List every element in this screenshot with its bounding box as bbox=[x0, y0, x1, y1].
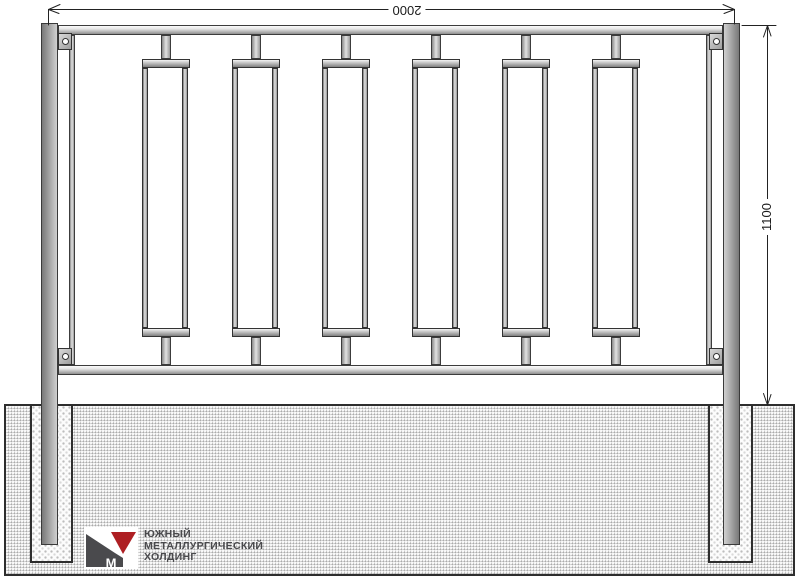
company-logo: M ЮЖНЫЙ МЕТАЛЛУРГИЧЕСКИЙ ХОЛДИНГ bbox=[84, 527, 284, 572]
picket-side-left bbox=[232, 68, 238, 328]
picket-cap-top bbox=[592, 59, 640, 68]
picket-frame bbox=[412, 59, 460, 337]
picket-cap-bottom bbox=[232, 328, 280, 337]
dimension-width-label: 2000 bbox=[389, 3, 426, 17]
picket-side-left bbox=[322, 68, 328, 328]
bolt-hole-icon bbox=[713, 38, 720, 45]
picket-frame bbox=[322, 59, 370, 337]
picket bbox=[322, 35, 370, 365]
mounting-plate-bottom-left bbox=[58, 348, 72, 365]
picket-bottom-connector bbox=[521, 337, 531, 365]
picket-top-connector bbox=[521, 35, 531, 59]
picket-cap-bottom bbox=[322, 328, 370, 337]
dimension-height-label: 1100 bbox=[760, 199, 774, 235]
mounting-plate-bottom-right bbox=[709, 348, 723, 365]
picket-cap-top bbox=[322, 59, 370, 68]
picket-top-connector bbox=[161, 35, 171, 59]
picket-cap-top bbox=[142, 59, 190, 68]
picket-cap-bottom bbox=[412, 328, 460, 337]
picket-side-right bbox=[182, 68, 188, 328]
picket bbox=[142, 35, 190, 365]
mounting-plate-top-left bbox=[58, 33, 72, 50]
picket-cap-bottom bbox=[502, 328, 550, 337]
picket-cap-top bbox=[502, 59, 550, 68]
logo-mark-icon: M bbox=[84, 527, 138, 569]
logo-text-line3: ХОЛДИНГ bbox=[144, 552, 263, 564]
picket-frame bbox=[232, 59, 280, 337]
picket-side-right bbox=[632, 68, 638, 328]
picket-top-connector bbox=[431, 35, 441, 59]
picket-bottom-connector bbox=[431, 337, 441, 365]
picket-top-connector bbox=[341, 35, 351, 59]
logo-text-line1: ЮЖНЫЙ bbox=[144, 529, 263, 541]
picket-bottom-connector bbox=[161, 337, 171, 365]
logo-mark-letter: M bbox=[106, 556, 117, 570]
pickets-layer bbox=[0, 0, 800, 582]
picket-top-connector bbox=[611, 35, 621, 59]
bolt-hole-icon bbox=[713, 353, 720, 360]
picket-cap-bottom bbox=[592, 328, 640, 337]
picket-bottom-connector bbox=[611, 337, 621, 365]
picket-bottom-connector bbox=[341, 337, 351, 365]
picket bbox=[412, 35, 460, 365]
drawing-canvas: 2000 1100 M ЮЖНЫЙ МЕТАЛЛУРГИЧЕСКИЙ ХОЛДИ… bbox=[0, 0, 800, 582]
picket-side-left bbox=[412, 68, 418, 328]
bolt-hole-icon bbox=[62, 353, 69, 360]
picket bbox=[232, 35, 280, 365]
picket-side-left bbox=[592, 68, 598, 328]
picket-frame bbox=[142, 59, 190, 337]
picket-side-right bbox=[362, 68, 368, 328]
picket bbox=[592, 35, 640, 365]
picket-side-right bbox=[542, 68, 548, 328]
picket-cap-bottom bbox=[142, 328, 190, 337]
picket-frame bbox=[592, 59, 640, 337]
picket-side-left bbox=[502, 68, 508, 328]
picket-cap-top bbox=[412, 59, 460, 68]
picket-frame bbox=[502, 59, 550, 337]
logo-text: ЮЖНЫЙ МЕТАЛЛУРГИЧЕСКИЙ ХОЛДИНГ bbox=[144, 527, 263, 564]
picket-side-left bbox=[142, 68, 148, 328]
picket-bottom-connector bbox=[251, 337, 261, 365]
picket bbox=[502, 35, 550, 365]
picket-top-connector bbox=[251, 35, 261, 59]
picket-cap-top bbox=[232, 59, 280, 68]
picket-side-right bbox=[452, 68, 458, 328]
picket-side-right bbox=[272, 68, 278, 328]
bolt-hole-icon bbox=[62, 38, 69, 45]
mounting-plate-top-right bbox=[709, 33, 723, 50]
